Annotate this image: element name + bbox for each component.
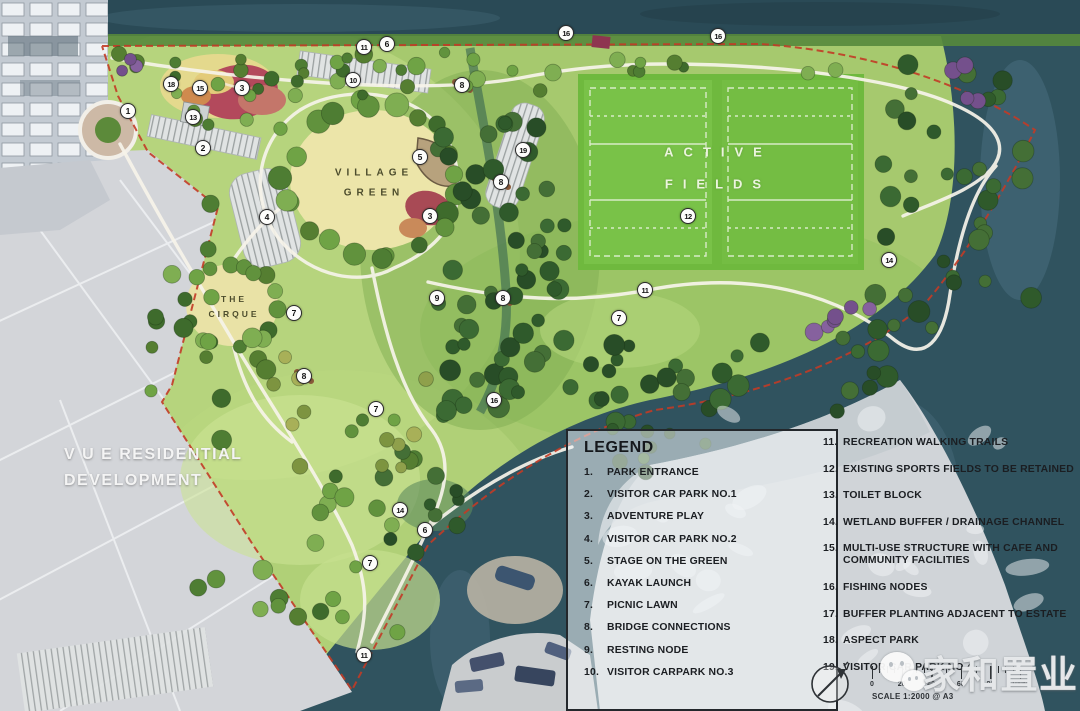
map-marker-14: 14 bbox=[392, 502, 408, 518]
map-marker-9: 9 bbox=[429, 290, 445, 306]
sports-fields bbox=[578, 74, 864, 270]
map-marker-5: 5 bbox=[412, 149, 428, 165]
north-arrow-icon bbox=[808, 660, 854, 706]
map-marker-1: 1 bbox=[120, 103, 136, 119]
map-marker-7: 7 bbox=[286, 305, 302, 321]
map-marker-12: 12 bbox=[680, 208, 696, 224]
scale-bar: 020406080100M SCALE 1:2000 @ A3 bbox=[808, 658, 1068, 708]
map-marker-3: 3 bbox=[422, 208, 438, 224]
map-marker-16: 16 bbox=[486, 392, 502, 408]
legend-item: 5.STAGE ON THE GREEN bbox=[584, 556, 836, 568]
map-marker-13: 13 bbox=[185, 109, 201, 125]
legend-item: 18.ASPECT PARK bbox=[823, 635, 1075, 647]
legend-item: 6.KAYAK LAUNCH bbox=[584, 578, 836, 590]
map-marker-6: 6 bbox=[417, 522, 433, 538]
legend-title: LEGEND bbox=[584, 439, 836, 457]
map-marker-8: 8 bbox=[296, 368, 312, 384]
legend-item: 9.RESTING NODE bbox=[584, 645, 836, 657]
legend-item: 3.ADVENTURE PLAY bbox=[584, 511, 836, 523]
legend-item: 4.VISITOR CAR PARK NO.2 bbox=[584, 534, 836, 546]
legend-item: 16.FISHING NODES bbox=[823, 582, 1075, 594]
map-marker-14: 14 bbox=[881, 252, 897, 268]
legend-item: 11.RECREATION WALKING TRAILS bbox=[823, 437, 1075, 449]
map-marker-16: 16 bbox=[558, 25, 574, 41]
map-marker-11: 11 bbox=[356, 39, 372, 55]
map-marker-2: 2 bbox=[195, 140, 211, 156]
map-marker-8: 8 bbox=[454, 77, 470, 93]
map-marker-16: 16 bbox=[710, 28, 726, 44]
map-marker-11: 11 bbox=[356, 647, 372, 663]
map-marker-18: 18 bbox=[163, 76, 179, 92]
map-marker-10: 10 bbox=[345, 72, 361, 88]
map-marker-4: 4 bbox=[259, 209, 275, 225]
legend-item: 1.PARK ENTRANCE bbox=[584, 467, 836, 479]
map-marker-8: 8 bbox=[495, 290, 511, 306]
legend-item: 12.EXISTING SPORTS FIELDS TO BE RETAINED bbox=[823, 464, 1075, 476]
legend-item: 7.PICNIC LAWN bbox=[584, 600, 836, 612]
map-marker-3: 3 bbox=[234, 80, 250, 96]
scale-caption: SCALE 1:2000 @ A3 bbox=[872, 692, 954, 701]
legend-item: 2.VISITOR CAR PARK NO.1 bbox=[584, 489, 836, 501]
legend-item: 8.BRIDGE CONNECTIONS bbox=[584, 622, 836, 634]
legend-items-right: 11.RECREATION WALKING TRAILS12.EXISTING … bbox=[823, 437, 1075, 688]
legend-item: 13.TOILET BLOCK bbox=[823, 490, 1075, 502]
map-marker-7: 7 bbox=[362, 555, 378, 571]
map-marker-19: 19 bbox=[515, 142, 531, 158]
legend-panel: LEGEND 1.PARK ENTRANCE2.VISITOR CAR PARK… bbox=[566, 429, 838, 711]
masterplan-map: ACTIVE FIELDS VILLAGE GREEN THE CIRQUE V… bbox=[0, 0, 1080, 711]
map-marker-8: 8 bbox=[493, 174, 509, 190]
legend-items-left: 1.PARK ENTRANCE2.VISITOR CAR PARK NO.13.… bbox=[584, 467, 836, 689]
map-marker-11: 11 bbox=[637, 282, 653, 298]
map-marker-7: 7 bbox=[368, 401, 384, 417]
legend-item: 10.VISITOR CARPARK NO.3 bbox=[584, 667, 836, 679]
scale-ruler bbox=[872, 666, 1020, 680]
legend-item: 15.MULTI-USE STRUCTURE WITH CAFE AND COM… bbox=[823, 543, 1075, 567]
legend-item: 14.WETLAND BUFFER / DRAINAGE CHANNEL bbox=[823, 517, 1075, 529]
map-marker-6: 6 bbox=[379, 36, 395, 52]
map-marker-7: 7 bbox=[611, 310, 627, 326]
map-marker-15: 15 bbox=[192, 80, 208, 96]
scale-tick-labels: 020406080100M bbox=[872, 681, 1024, 690]
legend-item: 17.BUFFER PLANTING ADJACENT TO ESTATE bbox=[823, 609, 1075, 621]
